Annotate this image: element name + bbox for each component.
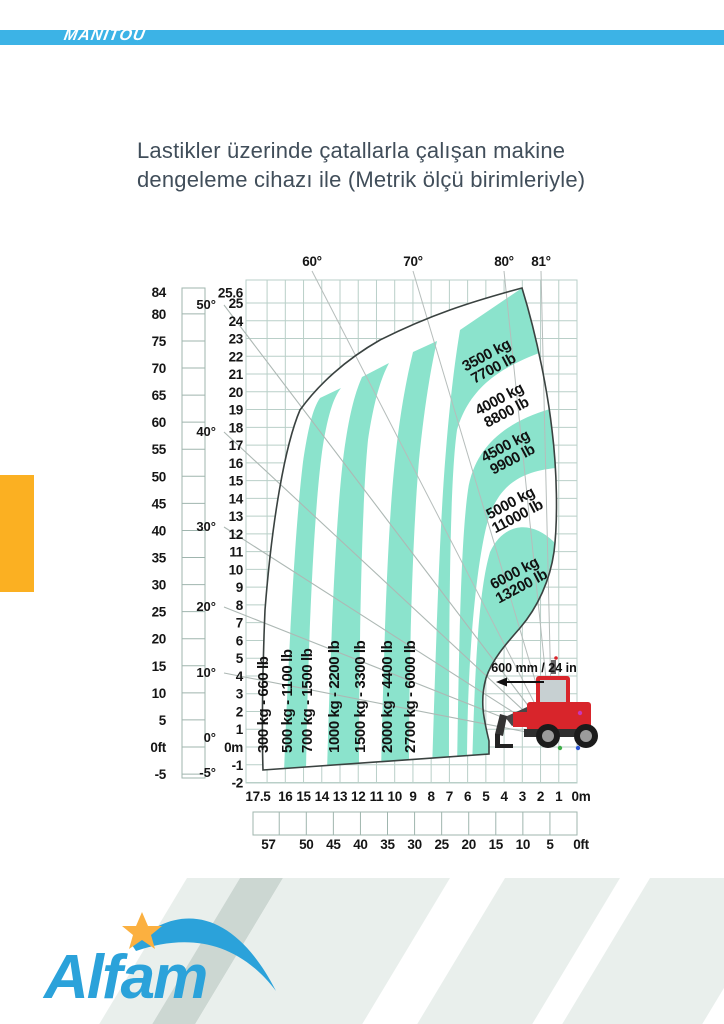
m-axis-label: 14 xyxy=(229,491,244,506)
ft-axis-label: 20 xyxy=(152,632,166,647)
bottom-m-label: 9 xyxy=(409,789,416,804)
bottom-ft-label: 15 xyxy=(489,837,504,852)
ft-axis-label: 75 xyxy=(152,334,167,349)
marker-red xyxy=(554,656,558,660)
angle-axis-label: 10° xyxy=(196,665,216,680)
bottom-m-label: 3 xyxy=(519,789,527,804)
ft-axis-label: 10 xyxy=(152,686,166,701)
bottom-m-label: 15 xyxy=(296,789,311,804)
m-axis-label: 21 xyxy=(229,367,244,382)
ft-axis-label: 40 xyxy=(152,523,166,538)
ft-axis-label: 84 xyxy=(152,285,167,300)
angle-axis-label: 40° xyxy=(196,424,216,439)
m-axis-label: 1 xyxy=(236,722,244,737)
clearance-arrow-head xyxy=(496,678,507,687)
bottom-ft-label: 20 xyxy=(462,837,476,852)
alfam-wordmark: Alfam xyxy=(42,943,206,1012)
alfam-logo: Alfam xyxy=(38,895,298,1020)
m-axis-label: 22 xyxy=(229,349,243,364)
m-axis-label: 20 xyxy=(229,385,243,400)
bottom-ft-label: 5 xyxy=(546,837,554,852)
top-angle-label: 70° xyxy=(403,254,423,269)
ft-axis-label: 60 xyxy=(152,415,166,430)
m-axis-label: 18 xyxy=(229,420,244,435)
m-axis-label: 13 xyxy=(229,509,244,524)
angle-axis-label: -5° xyxy=(199,765,216,780)
m-axis-label: -1 xyxy=(232,758,244,773)
bottom-m-label: 5 xyxy=(482,789,490,804)
top-angle-label: 60° xyxy=(302,254,322,269)
cab-window xyxy=(540,680,566,703)
front-wheel-rim xyxy=(542,730,554,742)
bottom-m-label: 2 xyxy=(537,789,544,804)
m-axis-label: 4 xyxy=(236,669,244,684)
load-chart: 8480757065605550454035302520151050ft-550… xyxy=(140,245,610,870)
angle-axis-label: 50° xyxy=(196,297,216,312)
page-title: Lastikler üzerinde çatallarla çalışan ma… xyxy=(137,136,627,194)
title-line2: dengeleme cihazı ile (Metrik ölçü biriml… xyxy=(137,167,585,192)
zone-label-vertical: 300 kg - 660 lb xyxy=(255,656,272,753)
zone-label-vertical: 2000 kg - 4400 lb xyxy=(379,640,396,753)
marker-blue xyxy=(576,746,580,750)
ft-axis-label: 0ft xyxy=(150,740,166,755)
m-axis-label: 8 xyxy=(236,598,244,613)
fork-carriage xyxy=(495,714,507,736)
top-angle-label: 81° xyxy=(531,254,551,269)
bottom-m-label: 14 xyxy=(315,789,330,804)
ft-axis-label: -5 xyxy=(155,767,167,782)
bottom-ft-label: 40 xyxy=(353,837,367,852)
m-axis-label: 25 xyxy=(229,296,244,311)
machine-front-frame xyxy=(513,712,530,727)
m-axis-label: -2 xyxy=(232,776,243,791)
angle-axis-label: 30° xyxy=(196,519,216,534)
ft-axis-label: 70 xyxy=(152,361,166,376)
bottom-m-label: 11 xyxy=(370,789,384,804)
bottom-ft-label: 0ft xyxy=(573,837,589,852)
m-axis-label: 9 xyxy=(236,580,243,595)
bottom-ft-label: 30 xyxy=(407,837,421,852)
zone-label-vertical: 1500 kg - 3300 lb xyxy=(352,640,369,753)
bottom-m-label: 17.5 xyxy=(245,789,271,804)
angle-axis-label: 20° xyxy=(196,599,216,614)
m-axis-label: 19 xyxy=(229,403,243,418)
zone-label-vertical: 700 kg - 1500 lb xyxy=(299,648,316,753)
m-axis-label: 7 xyxy=(236,616,243,631)
bottom-m-label: 10 xyxy=(387,789,401,804)
bottom-ft-label: 57 xyxy=(261,837,275,852)
manitou-logo: MANITOU xyxy=(62,27,147,45)
bottom-ft-label: 45 xyxy=(326,837,341,852)
m-axis-label: 12 xyxy=(229,527,243,542)
m-axis-label: 2 xyxy=(236,704,243,719)
ft-axis-label: 15 xyxy=(152,659,167,674)
zone-label-vertical: 500 kg - 1100 lb xyxy=(279,649,296,753)
bottom-ft-label: 50 xyxy=(299,837,313,852)
ft-axis-label: 80 xyxy=(152,307,166,322)
m-axis-label: 16 xyxy=(229,456,244,471)
ft-axis-label: 55 xyxy=(152,442,167,457)
bottom-m-label: 1 xyxy=(555,789,563,804)
top-angle-label: 80° xyxy=(494,254,514,269)
ft-axis-label: 65 xyxy=(152,388,167,403)
bottom-ft-label: 35 xyxy=(380,837,395,852)
m-axis-label: 11 xyxy=(229,545,243,560)
bottom-m-label: 0m xyxy=(572,789,591,804)
zone-label-vertical: 1000 kg - 2200 lb xyxy=(326,640,343,753)
ft-axis-label: 45 xyxy=(152,496,167,511)
ft-axis-label: 5 xyxy=(159,713,167,728)
m-axis-label: 10 xyxy=(229,562,243,577)
bottom-m-label: 7 xyxy=(446,789,453,804)
m-axis-label: 23 xyxy=(229,332,244,347)
m-axis-label: 5 xyxy=(236,651,244,666)
clearance-label: 600 mm / 24 in xyxy=(491,661,576,675)
angle-axis-label: 0° xyxy=(204,730,216,745)
top-brand-bar: MANITOU xyxy=(0,30,724,45)
marker-green xyxy=(558,746,562,750)
ft-axis-label: 25 xyxy=(152,605,167,620)
m-axis-label: 15 xyxy=(229,474,244,489)
m-axis-label: 24 xyxy=(229,314,244,329)
bottom-m-label: 6 xyxy=(464,789,472,804)
ft-axis-label: 30 xyxy=(152,578,166,593)
marker-magenta xyxy=(578,711,582,715)
m-axis-label: 0m xyxy=(224,740,243,755)
zone-label-vertical: 2700 kg - 6000 lb xyxy=(402,640,419,753)
title-line1: Lastikler üzerinde çatallarla çalışan ma… xyxy=(137,138,565,163)
orange-accent-block xyxy=(0,475,34,592)
m-axis-label: 17 xyxy=(229,438,243,453)
bottom-m-label: 8 xyxy=(428,789,436,804)
bottom-ft-label: 10 xyxy=(516,837,530,852)
bottom-m-label: 16 xyxy=(278,789,293,804)
ft-axis-label: 35 xyxy=(152,551,167,566)
m-axis-label: 3 xyxy=(236,687,244,702)
bottom-m-label: 13 xyxy=(333,789,348,804)
bottom-m-label: 12 xyxy=(351,789,365,804)
bottom-m-label: 4 xyxy=(500,789,508,804)
bottom-ft-label: 25 xyxy=(434,837,449,852)
m-axis-label: 6 xyxy=(236,633,244,648)
ft-axis-label: 50 xyxy=(152,469,166,484)
rear-wheel-rim xyxy=(580,730,592,742)
page: MANITOU Lastikler üzerinde çatallarla ça… xyxy=(0,0,724,1024)
